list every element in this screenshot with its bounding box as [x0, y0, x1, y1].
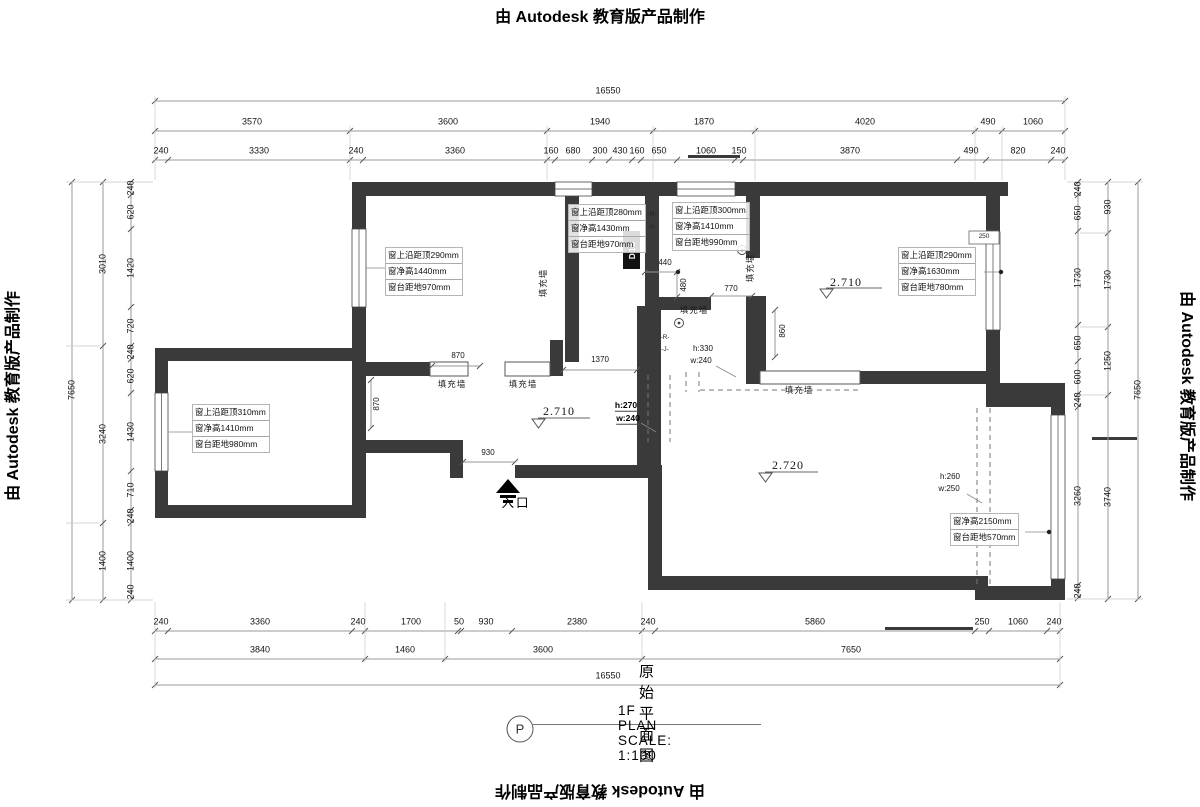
- dim-label: h:330: [693, 345, 713, 353]
- dim-label: 650: [651, 147, 666, 156]
- drawing-sheet: 由 Autodesk 教育版产品制作 由 Autodesk 教育版产品制作 由 …: [0, 0, 1200, 807]
- window-annotation-line: 窗净高1630mm: [899, 264, 975, 280]
- window-annotation-line: 窗台距地970mm: [386, 280, 462, 295]
- dim-label: 50: [454, 618, 464, 627]
- infill-wall-label: 填充墙: [509, 380, 538, 389]
- dim-label: 3240: [99, 424, 108, 444]
- dim-label: 1730: [1104, 270, 1113, 290]
- window-annotation-line: 窗净高1430mm: [569, 221, 645, 237]
- dim-label: 600: [1074, 369, 1083, 384]
- dim-label: 3870: [840, 147, 860, 156]
- dim-label: 1940: [590, 118, 610, 127]
- dim-label: 820: [1010, 147, 1025, 156]
- dim-label: 1400: [99, 551, 108, 571]
- dim-label: 240: [127, 584, 136, 599]
- dim-label: 240: [1074, 392, 1083, 407]
- dim-label: 3360: [250, 618, 270, 627]
- window-annotation-line: 窗上沿距顶310mm: [193, 405, 269, 421]
- dim-label: 160: [629, 147, 644, 156]
- dim-labels-layer: 1655035703600194018704020490106024033302…: [0, 0, 1200, 807]
- window-annotation-box: 窗上沿距顶310mm窗净高1410mm窗台距地980mm: [192, 404, 270, 453]
- infill-wall-label: 填充墙: [539, 269, 548, 298]
- window-annotation-line: 窗台距地570mm: [951, 530, 1018, 545]
- dim-label: -R-: [660, 335, 669, 342]
- window-annotation-line: 窗台距地980mm: [193, 437, 269, 452]
- dim-label: 250: [979, 234, 990, 241]
- dim-label: 430: [612, 147, 627, 156]
- dim-label: 620: [127, 204, 136, 219]
- dim-label: 490: [980, 118, 995, 127]
- window-annotation-line: 窗台距地970mm: [569, 237, 645, 252]
- window-annotation-line: 窗净高1410mm: [193, 421, 269, 437]
- dim-label: 1060: [696, 147, 716, 156]
- dim-label: 3570: [242, 118, 262, 127]
- window-annotation-line: 窗上沿距顶290mm: [386, 248, 462, 264]
- dim-label: 240: [153, 618, 168, 627]
- dim-label: 3600: [438, 118, 458, 127]
- dim-label: -J-: [661, 347, 669, 354]
- entrance-label: 入口: [501, 497, 530, 510]
- dim-label: -R-: [647, 212, 656, 219]
- dim-label: 680: [565, 147, 580, 156]
- dim-label: h:270: [615, 401, 637, 412]
- window-annotation-box: 窗净高2150mm窗台距地570mm: [950, 513, 1019, 546]
- dim-label: 870: [451, 352, 464, 360]
- window-annotation-box: 窗上沿距顶290mm窗净高1440mm窗台距地970mm: [385, 247, 463, 296]
- dim-label: 930: [1104, 199, 1113, 214]
- dim-label: 240: [1074, 181, 1083, 196]
- dim-label: 300: [592, 147, 607, 156]
- dim-label: 240: [153, 147, 168, 156]
- dim-label: 240: [350, 618, 365, 627]
- dim-label: 150: [731, 147, 746, 156]
- dim-label: 490: [963, 147, 978, 156]
- dim-label: 3840: [250, 646, 270, 655]
- dim-label: 770: [724, 285, 737, 293]
- window-annotation-line: 窗上沿距顶280mm: [569, 205, 645, 221]
- dim-label: h:260: [940, 473, 960, 481]
- dim-label: w:240: [690, 357, 711, 365]
- infill-wall-label: 填充墙: [438, 380, 467, 389]
- dim-label: 1420: [127, 258, 136, 278]
- dim-label: 930: [481, 449, 494, 457]
- dim-label: 16550: [595, 87, 620, 96]
- dim-label: 1400: [127, 551, 136, 571]
- window-annotation-box: 窗上沿距顶280mm窗净高1430mm窗台距地970mm: [568, 204, 646, 253]
- dim-label: 1250: [1104, 351, 1113, 371]
- dim-label: 1430: [127, 422, 136, 442]
- window-annotation-line: 窗台距地990mm: [673, 235, 749, 250]
- dim-label: 440: [658, 259, 671, 267]
- elevation-value: 2.720: [772, 459, 804, 471]
- dim-label: 240: [348, 147, 363, 156]
- infill-wall-label: 填充墙: [785, 386, 814, 395]
- plan-symbol-circle: P: [507, 716, 534, 743]
- dim-label: 7650: [68, 380, 77, 400]
- plan-scale: 1F PLAN SCALE: 1:100: [618, 703, 672, 763]
- dim-label: 7650: [1134, 380, 1143, 400]
- dim-label: 4020: [855, 118, 875, 127]
- dim-label: 240: [1046, 618, 1061, 627]
- dim-label: 3740: [1104, 487, 1113, 507]
- dim-label: 240: [1074, 583, 1083, 598]
- dim-label: 1060: [1023, 118, 1043, 127]
- dim-label: 1700: [401, 618, 421, 627]
- window-annotation-line: 窗台距地780mm: [899, 280, 975, 295]
- dim-label: 240: [640, 618, 655, 627]
- dim-label: 16550: [595, 672, 620, 681]
- dim-label: 1730: [1074, 268, 1083, 288]
- window-annotation-line: 窗上沿距顶290mm: [899, 248, 975, 264]
- dim-label: 3600: [533, 646, 553, 655]
- dim-label: 7650: [841, 646, 861, 655]
- dim-label: w:240: [616, 414, 640, 425]
- window-annotation-box: 窗上沿距顶300mm窗净高1410mm窗台距地990mm: [672, 202, 750, 251]
- dim-label: 240: [127, 508, 136, 523]
- dim-label: 1870: [694, 118, 714, 127]
- dim-label: 870: [373, 397, 381, 410]
- dim-label: 620: [127, 368, 136, 383]
- elevation-value: 2.710: [543, 405, 575, 417]
- dim-label: w:250: [938, 485, 959, 493]
- dim-label: 3010: [99, 254, 108, 274]
- window-annotation-line: 窗净高2150mm: [951, 514, 1018, 530]
- window-annotation-line: 窗上沿距顶300mm: [673, 203, 749, 219]
- dim-label: 1060: [1008, 618, 1028, 627]
- infill-wall-label: 填充墙: [680, 306, 709, 315]
- dim-label: 240: [1050, 147, 1065, 156]
- infill-wall-label: 填充墙: [746, 254, 755, 283]
- elevation-value: 2.710: [830, 276, 862, 288]
- dim-label: 240: [127, 344, 136, 359]
- dim-label: -J-: [648, 224, 656, 231]
- window-annotation-line: 窗净高1410mm: [673, 219, 749, 235]
- dim-label: 720: [127, 318, 136, 333]
- dim-label: 1370: [591, 356, 609, 364]
- dim-label: 3330: [249, 147, 269, 156]
- dim-label: 1460: [395, 646, 415, 655]
- dim-label: 930: [478, 618, 493, 627]
- window-annotation-box: 窗上沿距顶290mm窗净高1630mm窗台距地780mm: [898, 247, 976, 296]
- dim-label: 860: [779, 324, 787, 337]
- dim-label: 3360: [445, 147, 465, 156]
- window-annotation-line: 窗净高1440mm: [386, 264, 462, 280]
- dim-label: 3260: [1074, 486, 1083, 506]
- dim-label: 710: [127, 482, 136, 497]
- dim-label: 160: [543, 147, 558, 156]
- dim-label: 240: [127, 180, 136, 195]
- dim-label: 650: [1074, 335, 1083, 350]
- dim-label: 5860: [805, 618, 825, 627]
- dim-label: 250: [974, 618, 989, 627]
- dim-label: 480: [680, 278, 688, 291]
- dim-label: 2380: [567, 618, 587, 627]
- dim-label: 650: [1074, 205, 1083, 220]
